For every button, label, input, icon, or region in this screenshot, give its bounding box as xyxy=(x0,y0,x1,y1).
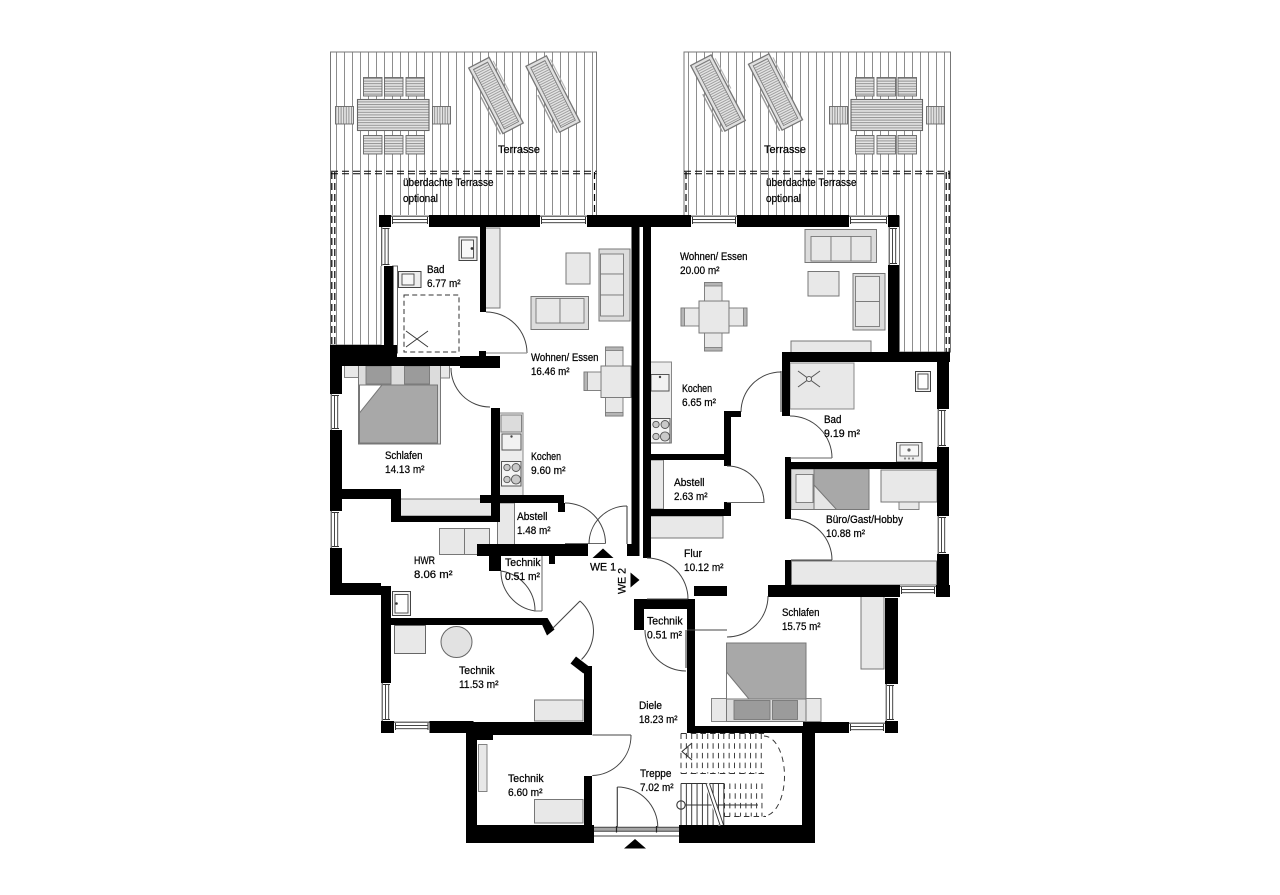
svg-text:Bad: Bad xyxy=(824,414,842,426)
svg-text:7.02 m²: 7.02 m² xyxy=(640,782,674,794)
svg-text:Diele: Diele xyxy=(639,700,662,712)
svg-text:Treppe: Treppe xyxy=(640,768,672,780)
svg-text:16.46 m²: 16.46 m² xyxy=(531,366,570,378)
svg-text:6.60 m²: 6.60 m² xyxy=(508,787,543,799)
svg-text:Technik: Technik xyxy=(505,557,541,569)
svg-text:14.13 m²: 14.13 m² xyxy=(385,464,425,476)
svg-text:10.88 m²: 10.88 m² xyxy=(826,528,865,540)
svg-text:optional: optional xyxy=(403,193,438,205)
svg-text:9.19 m²: 9.19 m² xyxy=(824,428,860,440)
svg-text:WE 2: WE 2 xyxy=(617,568,629,594)
svg-text:Abstell: Abstell xyxy=(674,477,705,489)
svg-text:0.51 m²: 0.51 m² xyxy=(505,571,540,583)
svg-text:6.77 m²: 6.77 m² xyxy=(427,278,461,290)
svg-text:1.48 m²: 1.48 m² xyxy=(517,525,551,537)
svg-text:Kochen: Kochen xyxy=(531,451,561,463)
svg-text:Terrasse: Terrasse xyxy=(764,144,806,156)
svg-text:Technik: Technik xyxy=(647,616,683,628)
svg-text:Schlafen: Schlafen xyxy=(385,450,423,462)
svg-text:optional: optional xyxy=(766,193,801,205)
svg-text:Wohnen/ Essen: Wohnen/ Essen xyxy=(531,352,599,364)
svg-text:Büro/Gast/Hobby: Büro/Gast/Hobby xyxy=(826,514,903,526)
svg-text:überdachte Terrasse: überdachte Terrasse xyxy=(403,177,494,189)
svg-text:11.53 m²: 11.53 m² xyxy=(459,679,499,691)
svg-text:WE 1: WE 1 xyxy=(590,562,616,574)
svg-text:8.06 m²: 8.06 m² xyxy=(414,569,453,581)
svg-text:Kochen: Kochen xyxy=(682,383,712,395)
svg-text:Bad: Bad xyxy=(427,264,445,276)
svg-text:überdachte Terrasse: überdachte Terrasse xyxy=(766,177,857,189)
svg-text:6.65 m²: 6.65 m² xyxy=(682,397,716,409)
svg-text:20.00 m²: 20.00 m² xyxy=(680,265,720,277)
svg-text:Flur: Flur xyxy=(684,548,702,560)
svg-text:15.75 m²: 15.75 m² xyxy=(782,621,821,633)
svg-text:Wohnen/ Essen: Wohnen/ Essen xyxy=(680,251,748,263)
svg-text:Abstell: Abstell xyxy=(517,511,548,523)
svg-text:HWR: HWR xyxy=(414,555,435,567)
svg-text:10.12 m²: 10.12 m² xyxy=(684,562,724,574)
svg-text:Technik: Technik xyxy=(508,773,544,785)
svg-text:2.63 m²: 2.63 m² xyxy=(674,491,708,503)
svg-text:0.51 m²: 0.51 m² xyxy=(647,630,682,642)
svg-text:9.60 m²: 9.60 m² xyxy=(531,465,566,477)
svg-text:Terrasse: Terrasse xyxy=(498,144,540,156)
svg-text:18.23 m²: 18.23 m² xyxy=(639,714,678,726)
svg-text:Technik: Technik xyxy=(459,665,495,677)
svg-text:Schlafen: Schlafen xyxy=(782,607,820,619)
